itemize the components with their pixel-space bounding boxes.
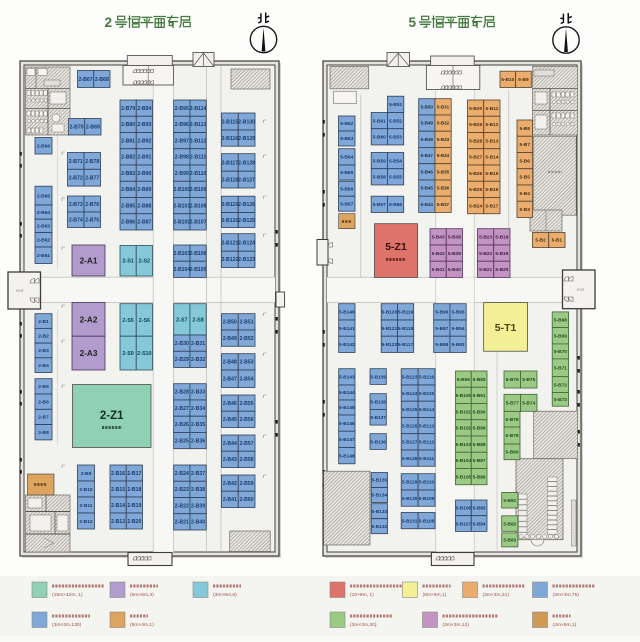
svg-text:2-B19: 2-B19 bbox=[127, 503, 141, 509]
svg-text:5-B143: 5-B143 bbox=[339, 375, 355, 381]
svg-text:5-B40: 5-B40 bbox=[448, 267, 461, 273]
svg-text:2-S1: 2-S1 bbox=[122, 259, 133, 265]
svg-text:5-B46: 5-B46 bbox=[421, 169, 434, 174]
svg-text:5-B54: 5-B54 bbox=[389, 158, 402, 164]
svg-text:5-B57: 5-B57 bbox=[373, 202, 386, 208]
svg-text:2: 2 bbox=[105, 15, 113, 30]
svg-text:(3m×3m,12): (3m×3m,12) bbox=[443, 622, 470, 628]
svg-text:2-B24: 2-B24 bbox=[175, 471, 189, 477]
svg-text:2-B29: 2-B29 bbox=[175, 357, 189, 363]
svg-text:5-B80: 5-B80 bbox=[506, 450, 519, 456]
svg-text:2-A1: 2-A1 bbox=[80, 256, 98, 265]
svg-text:5-B126: 5-B126 bbox=[402, 423, 418, 429]
svg-text:5-B58: 5-B58 bbox=[373, 175, 386, 181]
svg-text:5-Z1: 5-Z1 bbox=[385, 241, 407, 253]
svg-text:2-B98: 2-B98 bbox=[175, 155, 189, 161]
svg-text:5-B145: 5-B145 bbox=[339, 405, 355, 411]
svg-text:2-B63: 2-B63 bbox=[37, 224, 51, 230]
svg-text:2-B130: 2-B130 bbox=[238, 119, 255, 125]
svg-text:5-B28: 5-B28 bbox=[469, 138, 482, 144]
svg-text:5-B10: 5-B10 bbox=[501, 77, 514, 83]
svg-text:(3m×6m,1): (3m×6m,1) bbox=[553, 622, 577, 628]
svg-text:2-B12: 2-B12 bbox=[79, 519, 93, 525]
svg-text:2-B36: 2-B36 bbox=[191, 438, 205, 444]
svg-text:2-B20: 2-B20 bbox=[127, 519, 141, 525]
svg-text:2-B47: 2-B47 bbox=[223, 377, 237, 383]
svg-text:5-B18: 5-B18 bbox=[495, 235, 508, 241]
svg-text:2-B44: 2-B44 bbox=[223, 441, 237, 447]
svg-text:2-B3: 2-B3 bbox=[38, 348, 49, 354]
svg-text:2-B59: 2-B59 bbox=[240, 481, 254, 487]
svg-text:5-B144: 5-B144 bbox=[339, 390, 355, 396]
svg-text:5-B45: 5-B45 bbox=[421, 186, 434, 191]
svg-text:2-B27: 2-B27 bbox=[175, 406, 189, 412]
svg-text:2-B89: 2-B89 bbox=[137, 187, 151, 193]
svg-text:5-B22: 5-B22 bbox=[479, 251, 492, 257]
svg-text:5-B19: 5-B19 bbox=[495, 251, 508, 257]
svg-text:2-B55: 2-B55 bbox=[240, 401, 254, 407]
svg-text:5-B94: 5-B94 bbox=[452, 326, 465, 332]
svg-text:2-B128: 2-B128 bbox=[238, 160, 255, 166]
svg-text:5-B93: 5-B93 bbox=[452, 342, 465, 348]
svg-text:2-B102: 2-B102 bbox=[173, 220, 190, 226]
svg-text:2-B86: 2-B86 bbox=[121, 220, 135, 226]
svg-text:5-B128: 5-B128 bbox=[402, 456, 418, 462]
svg-text:5-B26: 5-B26 bbox=[469, 171, 482, 177]
svg-text:5-B44: 5-B44 bbox=[421, 202, 434, 207]
svg-text:5-B1: 5-B1 bbox=[552, 238, 563, 244]
svg-text:2-B46: 2-B46 bbox=[223, 401, 237, 407]
svg-text:2-B123: 2-B123 bbox=[238, 257, 255, 263]
svg-text:2-B90: 2-B90 bbox=[137, 171, 151, 177]
svg-text:2-S9: 2-S9 bbox=[122, 351, 133, 357]
svg-text:2-B88: 2-B88 bbox=[137, 203, 151, 209]
svg-text:(15m×12m, 1): (15m×12m, 1) bbox=[52, 592, 83, 598]
svg-text:2-B122: 2-B122 bbox=[221, 257, 238, 263]
svg-text:5-B83: 5-B83 bbox=[503, 538, 516, 544]
svg-text:2-B81: 2-B81 bbox=[121, 138, 135, 144]
svg-text:2-S5: 2-S5 bbox=[122, 318, 133, 324]
svg-text:2-B96: 2-B96 bbox=[175, 122, 189, 128]
svg-text:5-B78: 5-B78 bbox=[506, 417, 519, 423]
svg-text:2-B31: 2-B31 bbox=[191, 341, 205, 347]
svg-text:5-B53: 5-B53 bbox=[389, 135, 402, 141]
svg-text:2-S10: 2-S10 bbox=[137, 351, 151, 357]
svg-text:5-B25: 5-B25 bbox=[469, 187, 482, 193]
svg-text:5-B8: 5-B8 bbox=[520, 126, 531, 132]
svg-text:5-B120: 5-B120 bbox=[382, 310, 398, 316]
svg-text:2-B110: 2-B110 bbox=[190, 171, 207, 177]
svg-text:5-B33: 5-B33 bbox=[437, 137, 450, 142]
svg-text:2-B15: 2-B15 bbox=[111, 487, 125, 493]
svg-text:2-B109: 2-B109 bbox=[190, 187, 207, 193]
svg-text:5-B110: 5-B110 bbox=[419, 480, 435, 486]
svg-text:5-B97: 5-B97 bbox=[435, 326, 448, 332]
svg-text:5-B75: 5-B75 bbox=[522, 377, 535, 383]
svg-text:2-B65: 2-B65 bbox=[37, 193, 51, 199]
svg-text:5-B77: 5-B77 bbox=[506, 401, 519, 407]
svg-text:5-B50: 5-B50 bbox=[421, 104, 434, 109]
svg-text:5-B113: 5-B113 bbox=[419, 423, 435, 429]
svg-text:2-B8: 2-B8 bbox=[38, 430, 49, 436]
svg-text:5-B7: 5-B7 bbox=[520, 142, 531, 148]
svg-text:5-B138: 5-B138 bbox=[370, 399, 386, 405]
svg-text:2-S6: 2-S6 bbox=[139, 318, 150, 324]
svg-text:2-B73: 2-B73 bbox=[69, 202, 83, 208]
svg-text:5-B52: 5-B52 bbox=[389, 118, 402, 124]
svg-text:5-B65: 5-B65 bbox=[340, 170, 353, 176]
svg-text:2-B80: 2-B80 bbox=[121, 122, 135, 128]
svg-text:2-B35: 2-B35 bbox=[191, 422, 205, 428]
svg-text:2-B121: 2-B121 bbox=[221, 240, 238, 246]
svg-text:5-B82: 5-B82 bbox=[503, 521, 516, 527]
svg-text:5-B13: 5-B13 bbox=[485, 138, 498, 144]
svg-text:2-B91: 2-B91 bbox=[137, 155, 151, 161]
svg-text:5-B134: 5-B134 bbox=[372, 493, 388, 499]
svg-text:5-B87: 5-B87 bbox=[473, 458, 486, 464]
svg-text:5-B63: 5-B63 bbox=[340, 136, 353, 142]
svg-text:5-B103: 5-B103 bbox=[456, 442, 472, 448]
svg-text:2-B41: 2-B41 bbox=[223, 497, 237, 503]
svg-text:2-B50: 2-B50 bbox=[223, 320, 237, 326]
svg-text:2-B79: 2-B79 bbox=[121, 106, 135, 112]
svg-text:5-B100: 5-B100 bbox=[456, 393, 472, 399]
svg-text:5-B86: 5-B86 bbox=[473, 474, 486, 480]
svg-text:5-B139: 5-B139 bbox=[370, 374, 386, 380]
svg-text:2-B82: 2-B82 bbox=[121, 155, 135, 161]
svg-text:5-B135: 5-B135 bbox=[372, 478, 388, 484]
svg-text:2-B21: 2-B21 bbox=[175, 520, 189, 526]
svg-text:5-B66: 5-B66 bbox=[340, 186, 353, 192]
svg-text:2-B116: 2-B116 bbox=[222, 136, 239, 142]
svg-text:5-B30: 5-B30 bbox=[469, 106, 482, 112]
svg-text:5-B81: 5-B81 bbox=[503, 498, 516, 504]
svg-text:5-B35: 5-B35 bbox=[437, 169, 450, 174]
svg-text:2-B34: 2-B34 bbox=[191, 406, 205, 412]
svg-text:2-S2: 2-S2 bbox=[139, 259, 150, 265]
svg-text:2-B100: 2-B100 bbox=[173, 187, 190, 193]
svg-text:(3m×3m,30): (3m×3m,30) bbox=[350, 622, 377, 628]
svg-text:2-B106: 2-B106 bbox=[190, 251, 207, 257]
svg-text:5-B136: 5-B136 bbox=[370, 439, 386, 445]
svg-text:2-B94: 2-B94 bbox=[137, 106, 151, 112]
svg-text:2-B119: 2-B119 bbox=[222, 202, 239, 208]
svg-text:(8m×9m,1): (8m×9m,1) bbox=[423, 592, 447, 598]
svg-text:5-B4: 5-B4 bbox=[520, 191, 531, 197]
svg-text:5-B69: 5-B69 bbox=[554, 333, 567, 339]
svg-text:2-B6: 2-B6 bbox=[38, 399, 49, 405]
svg-text:2-B57: 2-B57 bbox=[240, 441, 254, 447]
svg-text:2-B78: 2-B78 bbox=[85, 159, 99, 165]
svg-text:5-B68: 5-B68 bbox=[554, 317, 567, 323]
svg-text:5-B74: 5-B74 bbox=[522, 401, 535, 407]
svg-text:2-B84: 2-B84 bbox=[121, 187, 135, 193]
svg-text:5-B51: 5-B51 bbox=[389, 102, 402, 108]
svg-text:5-B125: 5-B125 bbox=[402, 407, 418, 413]
svg-text:5-B129: 5-B129 bbox=[402, 480, 418, 486]
svg-text:5-B90: 5-B90 bbox=[473, 409, 486, 415]
svg-text:5-B15: 5-B15 bbox=[485, 171, 498, 177]
svg-text:5-B64: 5-B64 bbox=[340, 155, 353, 161]
svg-text:2-B7: 2-B7 bbox=[38, 415, 49, 421]
svg-text:2-B42: 2-B42 bbox=[223, 481, 237, 487]
svg-text:5-B20: 5-B20 bbox=[495, 267, 508, 273]
svg-text:2-B85: 2-B85 bbox=[121, 203, 135, 209]
svg-text:5-B127: 5-B127 bbox=[402, 440, 418, 446]
svg-text:2-B72: 2-B72 bbox=[69, 176, 83, 182]
svg-text:5-B106: 5-B106 bbox=[456, 506, 472, 512]
svg-text:5-B107: 5-B107 bbox=[456, 521, 472, 527]
svg-text:5-B16: 5-B16 bbox=[485, 187, 498, 193]
svg-text:(10×8m, 1): (10×8m, 1) bbox=[350, 592, 374, 598]
svg-text:2-B69: 2-B69 bbox=[86, 125, 100, 131]
svg-text:5-B72: 5-B72 bbox=[554, 382, 567, 388]
svg-text:5-B71: 5-B71 bbox=[554, 366, 567, 372]
svg-text:5-B119: 5-B119 bbox=[398, 310, 414, 316]
svg-text:5-B59: 5-B59 bbox=[373, 158, 386, 164]
svg-text:(3m×3m,31): (3m×3m,31) bbox=[483, 592, 510, 598]
svg-text:2-B18: 2-B18 bbox=[127, 487, 141, 493]
svg-text:(3m×3m,130): (3m×3m,130) bbox=[52, 622, 82, 628]
svg-text:2-B28: 2-B28 bbox=[175, 390, 189, 396]
svg-text:5-B137: 5-B137 bbox=[370, 415, 386, 421]
svg-text:2-B71: 2-B71 bbox=[69, 159, 83, 165]
svg-text:2-B58: 2-B58 bbox=[240, 457, 254, 463]
svg-text:2-B49: 2-B49 bbox=[223, 336, 237, 342]
svg-text:5-B108: 5-B108 bbox=[419, 518, 435, 524]
svg-text:2-B38: 2-B38 bbox=[191, 487, 205, 493]
svg-text:5-B142: 5-B142 bbox=[339, 342, 355, 348]
svg-text:5-B43: 5-B43 bbox=[432, 235, 445, 241]
svg-text:EXIT: EXIT bbox=[577, 288, 585, 292]
svg-text:2-B108: 2-B108 bbox=[190, 203, 207, 209]
svg-text:2-B113: 2-B113 bbox=[190, 122, 207, 128]
svg-text:5-B109: 5-B109 bbox=[419, 496, 435, 502]
svg-text:5-B36: 5-B36 bbox=[437, 186, 450, 191]
svg-text:5-B117: 5-B117 bbox=[398, 342, 414, 348]
svg-text:5-B21: 5-B21 bbox=[479, 267, 492, 273]
svg-text:5-B118: 5-B118 bbox=[398, 326, 414, 332]
svg-text:5-B11: 5-B11 bbox=[485, 106, 498, 112]
svg-text:2-B75: 2-B75 bbox=[85, 218, 99, 224]
svg-text:5-B122: 5-B122 bbox=[382, 342, 398, 348]
svg-text:5-B61: 5-B61 bbox=[373, 118, 386, 124]
svg-text:5-B114: 5-B114 bbox=[419, 407, 435, 413]
svg-text:5-B99: 5-B99 bbox=[457, 377, 470, 383]
svg-text:2-B76: 2-B76 bbox=[85, 202, 99, 208]
svg-text:5-B146: 5-B146 bbox=[339, 421, 355, 427]
svg-text:5-B91: 5-B91 bbox=[473, 393, 486, 399]
svg-text:2-B11: 2-B11 bbox=[79, 503, 92, 509]
svg-text:2-B103: 2-B103 bbox=[173, 251, 190, 257]
svg-text:5-T1: 5-T1 bbox=[495, 322, 517, 334]
svg-text:2-B127: 2-B127 bbox=[238, 177, 255, 183]
svg-text:2-B104: 2-B104 bbox=[173, 267, 190, 273]
svg-text:2-B54: 2-B54 bbox=[240, 377, 254, 383]
svg-text:2-B43: 2-B43 bbox=[223, 457, 237, 463]
svg-text:2-B74: 2-B74 bbox=[69, 218, 83, 224]
svg-text:5-B104: 5-B104 bbox=[456, 458, 472, 464]
svg-text:5-B41: 5-B41 bbox=[432, 267, 445, 273]
svg-text:2-B39: 2-B39 bbox=[191, 503, 205, 509]
svg-text:2-B68: 2-B68 bbox=[95, 77, 109, 83]
svg-text:2-B16: 2-B16 bbox=[111, 471, 125, 477]
svg-text:5-B2: 5-B2 bbox=[535, 238, 546, 244]
svg-text:2-B117: 2-B117 bbox=[222, 160, 239, 166]
svg-text:5-B12: 5-B12 bbox=[485, 122, 498, 128]
svg-text:2-B93: 2-B93 bbox=[137, 122, 151, 128]
svg-text:(3m×6m,8): (3m×6m,8) bbox=[213, 592, 237, 598]
svg-text:5-B32: 5-B32 bbox=[437, 121, 450, 126]
svg-text:2-B124: 2-B124 bbox=[238, 240, 255, 246]
svg-text:2-B62: 2-B62 bbox=[37, 238, 51, 244]
svg-text:5-B24: 5-B24 bbox=[469, 203, 482, 209]
svg-text:5-B116: 5-B116 bbox=[419, 375, 435, 381]
svg-text:(5m×4m,1): (5m×4m,1) bbox=[130, 622, 154, 628]
svg-text:5-B70: 5-B70 bbox=[554, 349, 567, 355]
svg-text:2-B52: 2-B52 bbox=[240, 336, 254, 342]
svg-text:5-B37: 5-B37 bbox=[437, 202, 450, 207]
svg-text:5-B130: 5-B130 bbox=[402, 496, 418, 502]
svg-text:5-B88: 5-B88 bbox=[473, 442, 486, 448]
svg-text:5-B47: 5-B47 bbox=[421, 153, 434, 158]
svg-text:2-B114: 2-B114 bbox=[190, 106, 207, 112]
svg-text:5-B6: 5-B6 bbox=[520, 158, 531, 164]
svg-text:5-B62: 5-B62 bbox=[340, 121, 353, 127]
svg-text:5-B95: 5-B95 bbox=[452, 310, 465, 316]
svg-text:2-B83: 2-B83 bbox=[121, 171, 135, 177]
svg-text:5: 5 bbox=[409, 15, 417, 30]
svg-text:2-B97: 2-B97 bbox=[175, 138, 189, 144]
svg-text:2-B115: 2-B115 bbox=[222, 119, 239, 125]
svg-text:5-B5: 5-B5 bbox=[520, 175, 531, 181]
svg-text:5-B98: 5-B98 bbox=[435, 342, 448, 348]
svg-text:2-B23: 2-B23 bbox=[175, 487, 189, 493]
svg-text:2-S7: 2-S7 bbox=[176, 317, 187, 323]
svg-text:5-B148: 5-B148 bbox=[339, 453, 355, 459]
svg-text:5-B101: 5-B101 bbox=[456, 409, 472, 415]
svg-text:5-B96: 5-B96 bbox=[435, 310, 448, 316]
svg-text:5-B73: 5-B73 bbox=[554, 397, 567, 403]
svg-text:2-B9: 2-B9 bbox=[81, 471, 92, 477]
svg-text:5-B76: 5-B76 bbox=[506, 377, 519, 383]
svg-text:2-B107: 2-B107 bbox=[190, 220, 207, 226]
svg-text:5-B105: 5-B105 bbox=[456, 474, 472, 480]
svg-text:5-B92: 5-B92 bbox=[473, 377, 486, 383]
svg-text:2-B10: 2-B10 bbox=[79, 487, 93, 493]
svg-text:2-B112: 2-B112 bbox=[190, 138, 207, 144]
svg-text:2-A3: 2-A3 bbox=[80, 349, 98, 358]
svg-text:2-B1: 2-B1 bbox=[38, 319, 49, 325]
svg-text:2-B87: 2-B87 bbox=[137, 220, 151, 226]
svg-text:(3m×3m,75): (3m×3m,75) bbox=[553, 592, 580, 598]
svg-text:5-B84: 5-B84 bbox=[473, 521, 486, 527]
svg-text:2-B60: 2-B60 bbox=[240, 497, 254, 503]
svg-text:5-B132: 5-B132 bbox=[372, 524, 388, 530]
svg-text:5-B31: 5-B31 bbox=[437, 104, 450, 109]
svg-text:5-B9: 5-B9 bbox=[518, 77, 529, 83]
svg-text:5-B140: 5-B140 bbox=[339, 310, 355, 316]
svg-text:5-B48: 5-B48 bbox=[421, 137, 434, 142]
svg-text:5-B29: 5-B29 bbox=[469, 122, 482, 128]
svg-text:2-B95: 2-B95 bbox=[175, 106, 189, 112]
svg-text:5-B17: 5-B17 bbox=[485, 203, 498, 209]
svg-text:5-B23: 5-B23 bbox=[479, 235, 492, 241]
svg-text:2-A2: 2-A2 bbox=[80, 315, 98, 324]
svg-text:2-B126: 2-B126 bbox=[238, 202, 255, 208]
svg-text:5-B112: 5-B112 bbox=[419, 440, 435, 446]
svg-text:2-B4: 2-B4 bbox=[38, 363, 49, 369]
svg-text:2-B51: 2-B51 bbox=[240, 320, 254, 326]
svg-text:(6m×6m,3): (6m×6m,3) bbox=[130, 592, 154, 598]
svg-text:5-B49: 5-B49 bbox=[421, 121, 434, 126]
svg-text:5-B121: 5-B121 bbox=[382, 326, 398, 332]
svg-text:2-B13: 2-B13 bbox=[111, 519, 125, 525]
svg-text:5-B34: 5-B34 bbox=[437, 153, 450, 158]
svg-text:2-B67: 2-B67 bbox=[79, 77, 93, 83]
svg-text:2-B33: 2-B33 bbox=[191, 390, 205, 396]
svg-text:2-B66: 2-B66 bbox=[37, 144, 51, 150]
svg-text:2-S8: 2-S8 bbox=[192, 317, 203, 323]
svg-text:2-B111: 2-B111 bbox=[190, 155, 206, 161]
svg-text:5-B79: 5-B79 bbox=[506, 433, 519, 439]
svg-text:2-B70: 2-B70 bbox=[70, 125, 84, 131]
svg-text:2-B17: 2-B17 bbox=[127, 471, 141, 477]
svg-text:5-B124: 5-B124 bbox=[402, 391, 418, 397]
svg-text:5-B60: 5-B60 bbox=[373, 135, 386, 141]
svg-text:5-B14: 5-B14 bbox=[485, 155, 498, 161]
svg-text:5-B38: 5-B38 bbox=[448, 235, 461, 241]
svg-text:5-B39: 5-B39 bbox=[448, 251, 461, 257]
svg-text:5-B133: 5-B133 bbox=[372, 509, 388, 515]
svg-text:2-B37: 2-B37 bbox=[191, 471, 205, 477]
svg-text:5-B55: 5-B55 bbox=[389, 175, 402, 181]
svg-text:5-B111: 5-B111 bbox=[419, 456, 434, 462]
svg-text:5-B3: 5-B3 bbox=[520, 207, 531, 213]
svg-text:5-B123: 5-B123 bbox=[402, 375, 418, 381]
svg-text:5-B67: 5-B67 bbox=[340, 201, 353, 207]
svg-text:5-B89: 5-B89 bbox=[473, 426, 486, 432]
svg-text:5-B56: 5-B56 bbox=[389, 202, 402, 208]
svg-text:2-B25: 2-B25 bbox=[175, 438, 189, 444]
svg-text:2-B120: 2-B120 bbox=[221, 218, 238, 224]
svg-text:2-B101: 2-B101 bbox=[173, 203, 190, 209]
svg-text:5-B42: 5-B42 bbox=[432, 251, 445, 257]
svg-text:2-B99: 2-B99 bbox=[175, 171, 189, 177]
svg-text:5-B141: 5-B141 bbox=[339, 326, 355, 332]
svg-text:5-B102: 5-B102 bbox=[456, 426, 472, 432]
svg-text:2-Z1: 2-Z1 bbox=[100, 410, 124, 422]
svg-text:2-B14: 2-B14 bbox=[111, 503, 125, 509]
svg-text:5-B147: 5-B147 bbox=[339, 437, 355, 443]
svg-text:2-B61: 2-B61 bbox=[37, 253, 51, 259]
svg-text:5-B27: 5-B27 bbox=[469, 155, 482, 161]
svg-text:2-B105: 2-B105 bbox=[190, 267, 207, 273]
svg-text:2-B5: 2-B5 bbox=[38, 384, 49, 390]
svg-text:2-B92: 2-B92 bbox=[137, 138, 151, 144]
svg-text:2-B129: 2-B129 bbox=[238, 136, 255, 142]
svg-text:5-B115: 5-B115 bbox=[419, 391, 435, 397]
svg-text:2-B30: 2-B30 bbox=[175, 341, 189, 347]
svg-text:2-B77: 2-B77 bbox=[85, 176, 99, 182]
svg-text:2-B53: 2-B53 bbox=[240, 360, 254, 366]
svg-text:2-B125: 2-B125 bbox=[238, 218, 255, 224]
svg-text:5-B131: 5-B131 bbox=[402, 518, 418, 524]
svg-text:2-B56: 2-B56 bbox=[240, 417, 254, 423]
svg-text:2-B118: 2-B118 bbox=[222, 177, 239, 183]
svg-text:2-B48: 2-B48 bbox=[223, 360, 237, 366]
svg-text:5-B85: 5-B85 bbox=[473, 506, 486, 512]
